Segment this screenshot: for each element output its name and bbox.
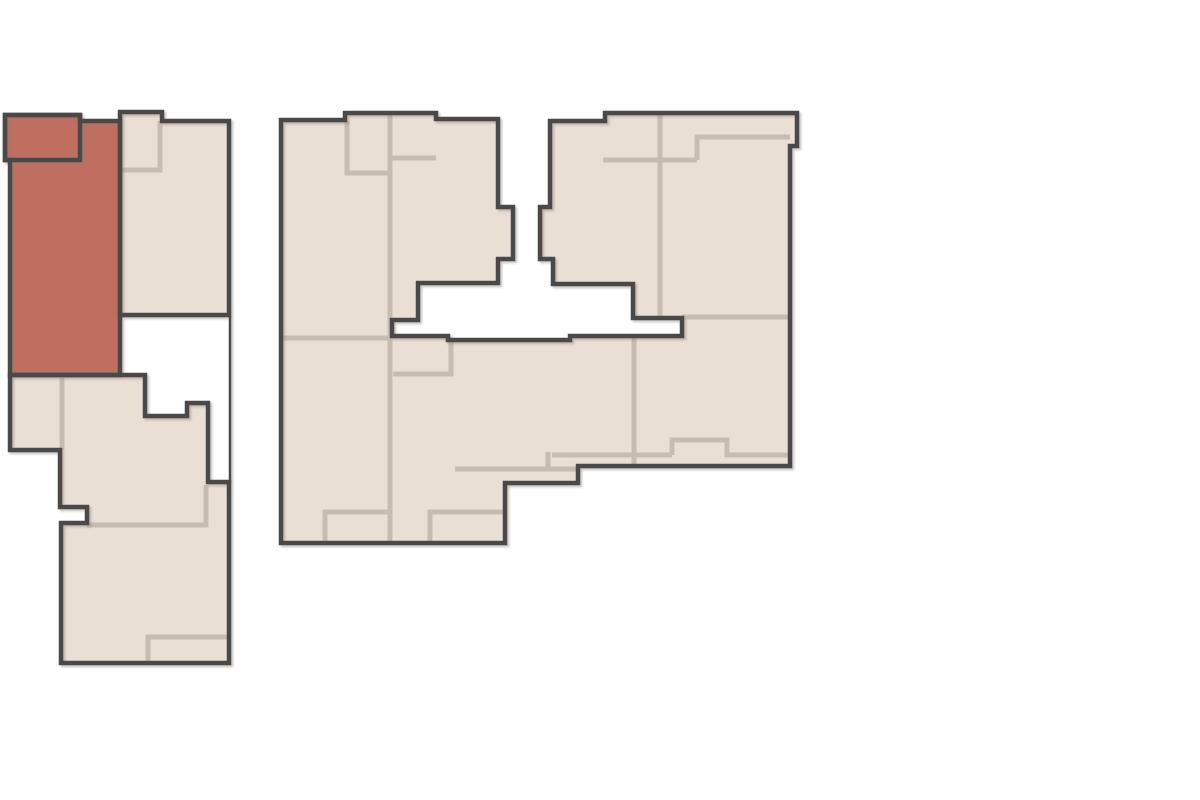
floorplan-canvas (0, 0, 1200, 800)
floorplan-stage (0, 0, 1200, 800)
unit-lower-left-section-fill[interactable] (10, 375, 229, 663)
unit-fills-layer (5, 112, 797, 663)
unit-highlighted-balcony-fill (5, 115, 80, 160)
building-main-floorplate-fill[interactable] (281, 113, 797, 543)
unit-top-right-of-left-block-fill[interactable] (120, 112, 229, 315)
